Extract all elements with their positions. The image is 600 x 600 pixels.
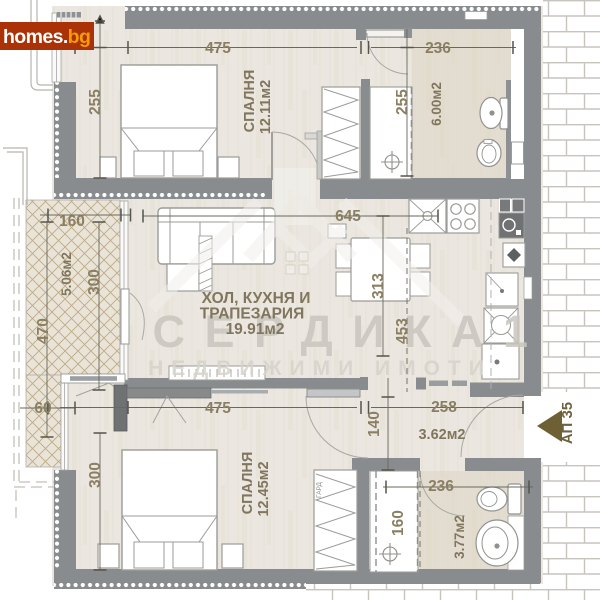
svg-text:ХОЛ, КУХНЯ И: ХОЛ, КУХНЯ И — [202, 290, 311, 307]
svg-text:255: 255 — [394, 89, 411, 115]
svg-text:160: 160 — [59, 213, 85, 230]
svg-text:258: 258 — [431, 399, 457, 416]
svg-text:СПАЛНЯ: СПАЛНЯ — [240, 452, 256, 515]
svg-text:СПАЛНЯ: СПАЛНЯ — [242, 70, 258, 133]
svg-text:645: 645 — [335, 208, 361, 225]
svg-text:160: 160 — [390, 510, 407, 536]
svg-text:homes.bg: homes.bg — [3, 26, 90, 48]
svg-text:255: 255 — [87, 89, 104, 115]
svg-text:АП 35: АП 35 — [559, 402, 576, 444]
svg-text:300: 300 — [87, 462, 104, 488]
svg-text:475: 475 — [205, 40, 231, 57]
svg-text:236: 236 — [425, 40, 451, 57]
svg-text:3.77м2: 3.77м2 — [452, 515, 467, 559]
svg-text:5.06м2: 5.06м2 — [59, 252, 74, 296]
svg-text:ТРАПЕЗАРИЯ: ТРАПЕЗАРИЯ — [200, 306, 304, 323]
svg-text:НЕДВИЖИМИ ИМОТИ: НЕДВИЖИМИ ИМОТИ — [148, 357, 492, 380]
svg-text:453: 453 — [394, 318, 411, 344]
svg-text:140: 140 — [366, 411, 383, 437]
svg-text:12.45м2: 12.45м2 — [256, 461, 272, 516]
svg-text:6.00м2: 6.00м2 — [429, 82, 444, 126]
svg-text:470: 470 — [35, 318, 52, 344]
svg-text:475: 475 — [205, 400, 231, 417]
svg-text:60: 60 — [34, 400, 51, 417]
svg-text:ГАРД: ГАРД — [316, 482, 323, 498]
svg-text:12.11м2: 12.11м2 — [258, 80, 274, 134]
svg-text:313: 313 — [370, 273, 387, 299]
svg-text:300: 300 — [86, 269, 103, 295]
svg-text:236: 236 — [428, 478, 454, 495]
svg-text:19.91м2: 19.91м2 — [226, 321, 285, 338]
svg-text:3.62м2: 3.62м2 — [418, 427, 465, 443]
